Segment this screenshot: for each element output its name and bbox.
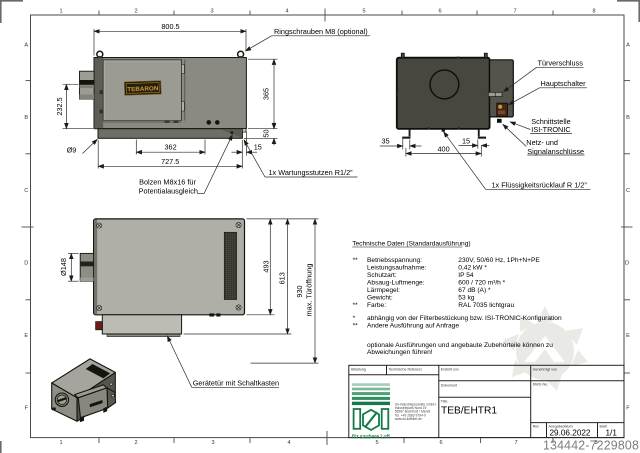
svg-text:für saubere Luft: für saubere Luft bbox=[352, 434, 390, 440]
svg-text:Bolzen M8x16 für: Bolzen M8x16 für bbox=[139, 177, 196, 186]
svg-text:B: B bbox=[24, 115, 28, 121]
svg-text:C: C bbox=[24, 188, 28, 194]
svg-text:0,42 kW *: 0,42 kW * bbox=[458, 264, 487, 271]
svg-text:1x Wartungsstutzen R1/2”: 1x Wartungsstutzen R1/2” bbox=[269, 168, 354, 177]
svg-text:Ø148: Ø148 bbox=[59, 258, 68, 276]
svg-text:232.5: 232.5 bbox=[55, 97, 64, 115]
svg-text:TEBARON: TEBARON bbox=[127, 85, 159, 93]
svg-text:TEB/EHTR1: TEB/EHTR1 bbox=[441, 406, 497, 417]
svg-text:493: 493 bbox=[261, 260, 270, 272]
svg-text:Andere Ausführung auf Anfrage: Andere Ausführung auf Anfrage bbox=[367, 322, 459, 329]
svg-text:B: B bbox=[626, 115, 630, 121]
svg-text:6: 6 bbox=[439, 440, 442, 446]
svg-text:5: 5 bbox=[375, 440, 378, 446]
svg-text:**: ** bbox=[353, 302, 359, 309]
svg-text:E: E bbox=[24, 333, 28, 339]
svg-text:Farbe:: Farbe: bbox=[367, 302, 386, 309]
svg-text:Potentialausgleich: Potentialausgleich bbox=[139, 187, 198, 196]
svg-text:613: 613 bbox=[278, 272, 287, 284]
svg-text:D: D bbox=[24, 261, 28, 267]
svg-text:Türverschluss: Türverschluss bbox=[538, 59, 584, 68]
svg-text:Technische Referenz: Technische Referenz bbox=[389, 367, 423, 371]
svg-text:2: 2 bbox=[134, 440, 137, 446]
svg-text:DWG No.: DWG No. bbox=[533, 382, 548, 386]
svg-text:67 dB (A) *: 67 dB (A) * bbox=[458, 287, 491, 294]
svg-text:Abweichungen führen!: Abweichungen führen! bbox=[367, 349, 433, 356]
svg-text:400: 400 bbox=[438, 145, 450, 154]
svg-text:Technische Daten (Standardausf: Technische Daten (Standardausführung) bbox=[352, 240, 470, 247]
svg-text:230V, 50/60 Hz, 1Ph+N+PE: 230V, 50/60 Hz, 1Ph+N+PE bbox=[458, 257, 540, 264]
svg-text:1: 1 bbox=[59, 440, 62, 446]
svg-text:1: 1 bbox=[59, 9, 62, 15]
svg-text:E: E bbox=[626, 333, 630, 339]
svg-text:7: 7 bbox=[514, 440, 517, 446]
svg-text:8: 8 bbox=[592, 9, 595, 15]
svg-text:Gerätetür mit Schaltkasten: Gerätetür mit Schaltkasten bbox=[193, 379, 279, 388]
svg-text:optionale Ausführungen und ang: optionale Ausführungen und angebaute Zub… bbox=[367, 342, 553, 349]
svg-text:Lärmpegel:: Lärmpegel: bbox=[367, 287, 400, 294]
svg-text:Ø9: Ø9 bbox=[67, 145, 77, 154]
svg-text:Leistungsaufnahme:: Leistungsaufnahme: bbox=[367, 264, 427, 271]
svg-text:IP 54: IP 54 bbox=[458, 272, 474, 279]
svg-text:C: C bbox=[626, 188, 630, 194]
svg-text:RAL 7035 lichtgrau: RAL 7035 lichtgrau bbox=[458, 302, 514, 309]
svg-text:4: 4 bbox=[287, 440, 290, 446]
svg-text:www.isi-luftfilter.de: www.isi-luftfilter.de bbox=[395, 417, 422, 421]
svg-text:35: 35 bbox=[381, 137, 389, 146]
svg-text:Schutzart:: Schutzart: bbox=[367, 272, 397, 279]
svg-text:Ringschrauben M8 (optional): Ringschrauben M8 (optional) bbox=[274, 27, 368, 36]
svg-text:abhängig von der Filterbestück: abhängig von der Filterbestückung bzw. I… bbox=[367, 315, 562, 322]
svg-text:A: A bbox=[626, 43, 630, 49]
svg-text:930: 930 bbox=[295, 285, 304, 297]
svg-text:362: 362 bbox=[165, 143, 177, 152]
svg-text:Hauptschalter: Hauptschalter bbox=[541, 79, 587, 88]
svg-text:**: ** bbox=[353, 322, 359, 329]
svg-text:F: F bbox=[25, 406, 29, 412]
svg-text:600 / 720 m³/h *: 600 / 720 m³/h * bbox=[458, 279, 505, 286]
svg-text:29.06.2022: 29.06.2022 bbox=[550, 428, 591, 437]
svg-text:D: D bbox=[625, 261, 629, 267]
svg-text:Genehmigt von: Genehmigt von bbox=[533, 367, 557, 371]
svg-text:Erstellt von: Erstellt von bbox=[441, 367, 459, 371]
svg-text:2: 2 bbox=[134, 9, 137, 15]
svg-text:800.5: 800.5 bbox=[161, 22, 179, 31]
svg-text:F: F bbox=[626, 406, 630, 412]
svg-text:3: 3 bbox=[210, 9, 213, 15]
svg-text:4: 4 bbox=[285, 9, 288, 15]
svg-text:3: 3 bbox=[211, 440, 214, 446]
svg-text:5: 5 bbox=[362, 9, 365, 15]
svg-text:134442-7229808: 134442-7229808 bbox=[543, 439, 639, 453]
svg-text:1/1: 1/1 bbox=[606, 428, 618, 437]
svg-text:50: 50 bbox=[262, 129, 271, 137]
svg-text:**: ** bbox=[353, 257, 359, 264]
svg-text:Title: Title bbox=[441, 400, 448, 404]
svg-text:Betriebsspannung:: Betriebsspannung: bbox=[367, 257, 422, 264]
svg-text:ISI-TRONIC: ISI-TRONIC bbox=[531, 125, 570, 134]
svg-text:Dokument: Dokument bbox=[441, 383, 457, 387]
svg-text:max. Türöffnung: max. Türöffnung bbox=[304, 264, 313, 317]
svg-text:7: 7 bbox=[513, 9, 516, 15]
svg-text:A: A bbox=[24, 43, 28, 49]
svg-text:*: * bbox=[353, 315, 356, 322]
svg-text:365: 365 bbox=[262, 88, 271, 100]
svg-text:53 kg: 53 kg bbox=[458, 294, 474, 301]
svg-text:Signalanschlüsse: Signalanschlüsse bbox=[527, 147, 584, 156]
svg-text:6: 6 bbox=[438, 9, 441, 15]
svg-text:Abteilung: Abteilung bbox=[351, 367, 366, 371]
svg-text:15: 15 bbox=[254, 143, 262, 152]
svg-text:15: 15 bbox=[462, 137, 470, 146]
svg-text:727.5: 727.5 bbox=[161, 157, 179, 166]
svg-text:Absaug-Luftmenge:: Absaug-Luftmenge: bbox=[367, 279, 425, 286]
svg-text:1x Flüssigkeitsrücklauf R 1/2”: 1x Flüssigkeitsrücklauf R 1/2” bbox=[492, 181, 588, 190]
svg-text:Gewicht:: Gewicht: bbox=[367, 294, 393, 301]
svg-text:Rev: Rev bbox=[533, 425, 540, 429]
